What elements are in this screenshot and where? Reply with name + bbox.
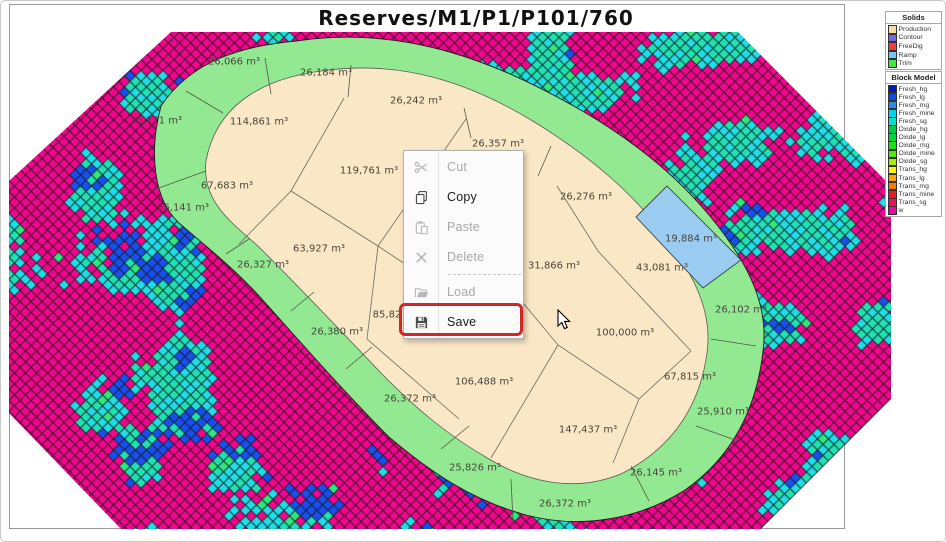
menu-separator bbox=[448, 274, 521, 275]
legend-item: Trans_sg bbox=[886, 198, 941, 206]
legend-item: Fresh_sg bbox=[886, 117, 941, 125]
legend-label: Fresh_lg bbox=[899, 94, 925, 101]
legend-item: Oxide_mine bbox=[886, 150, 941, 158]
legend-solids-title: Solids bbox=[885, 11, 942, 24]
legend-block-model[interactable]: Block Model Fresh_hgFresh_lgFresh_mgFres… bbox=[885, 71, 942, 217]
legend-swatch bbox=[888, 51, 897, 60]
legend-item: Trans_mine bbox=[886, 190, 941, 198]
legend-swatch bbox=[888, 59, 897, 68]
legend-item: Fresh_mine bbox=[886, 109, 941, 117]
delete-icon bbox=[404, 250, 438, 265]
legend-block-model-body: Fresh_hgFresh_lgFresh_mgFresh_mineFresh_… bbox=[885, 84, 942, 217]
legend-label: Oxide_mg bbox=[899, 142, 930, 149]
legend-item: Fresh_lg bbox=[886, 93, 941, 101]
menu-item-cut[interactable]: Cut bbox=[404, 152, 523, 182]
copy-icon bbox=[404, 190, 438, 205]
legend-block-model-title: Block Model bbox=[885, 71, 942, 84]
legend-label: Fresh_sg bbox=[899, 118, 927, 125]
legend-label: Trim bbox=[899, 60, 912, 67]
paste-icon bbox=[404, 220, 438, 235]
legend-item: Trans_mg bbox=[886, 182, 941, 190]
legend-item: Fresh_hg bbox=[886, 85, 941, 93]
legend-item: Trim bbox=[886, 59, 941, 68]
legend-label: Trans_hg bbox=[899, 166, 927, 173]
legend-label: Contour bbox=[899, 34, 923, 41]
legend-label: Fresh_mg bbox=[899, 102, 930, 109]
scissors-icon bbox=[404, 160, 438, 175]
legend-label: Oxide_hg bbox=[899, 126, 928, 133]
legend-label: Oxide_mine bbox=[899, 150, 935, 157]
menu-item-delete[interactable]: Delete bbox=[404, 242, 523, 272]
legend-item: Oxide_lg bbox=[886, 134, 941, 142]
legend-swatch bbox=[888, 34, 897, 43]
menu-item-paste[interactable]: Paste bbox=[404, 212, 523, 242]
legend-item: Contour bbox=[886, 34, 941, 43]
legend-swatch bbox=[888, 25, 897, 34]
menu-item-label: Delete bbox=[438, 250, 484, 264]
legend-swatch bbox=[888, 206, 897, 215]
legend-label: Trans_mg bbox=[899, 183, 929, 190]
legend-item: FreeDig bbox=[886, 42, 941, 51]
legend-label: Fresh_mine bbox=[899, 110, 935, 117]
legend-swatch bbox=[888, 42, 897, 51]
save-highlight-box bbox=[399, 303, 523, 336]
legend-label: FreeDig bbox=[899, 43, 923, 50]
menu-item-copy[interactable]: Copy bbox=[404, 182, 523, 212]
legend-item: Trans_lg bbox=[886, 174, 941, 182]
legend-item: Ramp bbox=[886, 51, 941, 60]
legend-label: Trans_mine bbox=[899, 191, 935, 198]
menu-item-label: Copy bbox=[438, 190, 477, 204]
legend-label: Ramp bbox=[899, 52, 917, 59]
legend-label: Production bbox=[899, 26, 932, 33]
legend-label: Fresh_hg bbox=[899, 86, 928, 93]
legend-item: Trans_hg bbox=[886, 166, 941, 174]
legend-item: Oxide_sg bbox=[886, 158, 941, 166]
legend-item: Oxide_hg bbox=[886, 125, 941, 133]
menu-item-label: Paste bbox=[438, 220, 480, 234]
menu-item-label: Cut bbox=[438, 160, 467, 174]
legend-label: Trans_sg bbox=[899, 199, 927, 206]
legend-item: Oxide_mg bbox=[886, 142, 941, 150]
plot-title: Reserves/M1/P1/P101/760 bbox=[1, 6, 946, 30]
legend-label: w bbox=[899, 207, 904, 214]
folder-open-icon bbox=[404, 285, 438, 300]
legend-label: Trans_lg bbox=[899, 175, 925, 182]
legend-solids[interactable]: Solids ProductionContourFreeDigRampTrim bbox=[885, 11, 942, 70]
legend-solids-body: ProductionContourFreeDigRampTrim bbox=[885, 24, 942, 70]
legend-item: w bbox=[886, 206, 941, 214]
legend-item: Fresh_mg bbox=[886, 101, 941, 109]
legend-label: Oxide_lg bbox=[899, 134, 926, 141]
legend-item: Production bbox=[886, 25, 941, 34]
application-window: Reserves/M1/P1/P101/760 26,066 m³26,184 … bbox=[0, 0, 946, 542]
menu-item-label: Load bbox=[438, 285, 476, 299]
legend-label: Oxide_sg bbox=[899, 158, 928, 165]
